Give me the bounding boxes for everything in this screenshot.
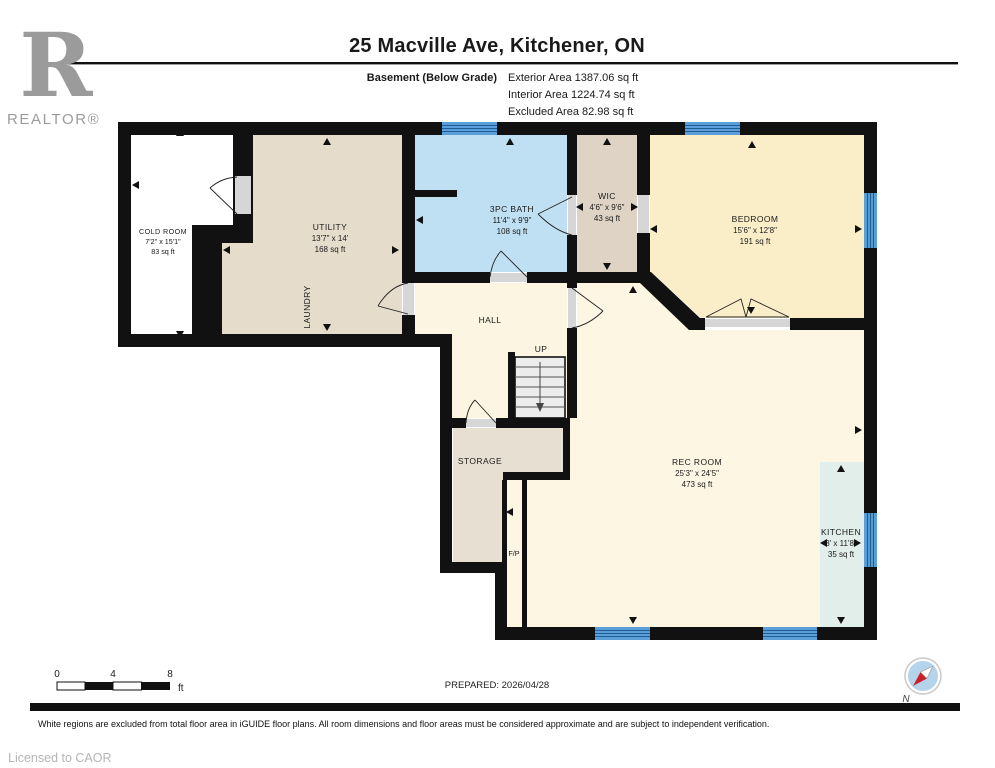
realtor-logo-text: REALTOR® — [7, 111, 100, 128]
floor-label: Basement (Below Grade) — [367, 72, 498, 84]
rec-room-area: 473 sq ft — [682, 480, 713, 489]
scale-bar: 0 4 8 ft — [54, 669, 184, 694]
room-rec-room — [527, 283, 864, 627]
door-hall-rec — [568, 288, 576, 328]
scale-tick-8: 8 — [167, 669, 173, 680]
bath-dims: 11'4" x 9'9" — [493, 216, 532, 225]
bath-area: 108 sq ft — [497, 227, 528, 236]
laundry-label: LAUNDRY — [302, 285, 312, 328]
kitchen-label: KITCHEN — [821, 527, 861, 537]
bedroom-label: BEDROOM — [732, 214, 779, 224]
door-bath-hall — [490, 273, 527, 282]
window-bath-top — [442, 122, 497, 135]
scale-tick-4: 4 — [110, 669, 116, 680]
cold-room-label: COLD ROOM — [139, 227, 187, 236]
door-utility-hall — [403, 283, 414, 315]
window-bedroom-top — [685, 122, 740, 135]
floorplan-page: R REALTOR® 25 Macville Ave, Kitchener, O… — [0, 0, 995, 768]
window-kitchen-right — [864, 513, 877, 567]
door-storage — [466, 419, 496, 427]
bedroom-area: 191 sq ft — [740, 237, 771, 246]
wic-dims: 4'6" x 9'6" — [590, 203, 625, 212]
footer-rule — [30, 703, 960, 711]
realtor-logo-icon: R — [19, 13, 93, 117]
wic-label: WIC — [598, 191, 616, 201]
header-rule — [33, 62, 958, 64]
rec-room-dims: 25'3" x 24'5" — [675, 469, 719, 478]
kitchen-area: 35 sq ft — [828, 550, 855, 559]
door-cold-utility — [235, 176, 251, 214]
utility-label: UTILITY — [313, 222, 347, 232]
kitchen-dims: 3' x 11'8" — [825, 539, 857, 548]
window-kitchen-bottom — [763, 627, 817, 640]
compass-icon: N — [902, 658, 941, 705]
page-title: 25 Macville Ave, Kitchener, ON — [349, 35, 645, 57]
prepared-date: PREPARED: 2026/04/28 — [445, 680, 549, 691]
door-bath-wic — [568, 195, 576, 235]
bedroom-dims: 15'6" x 12'8" — [733, 226, 777, 235]
utility-area: 168 sq ft — [315, 245, 346, 254]
bath-label: 3PC BATH — [490, 204, 534, 214]
utility-dims: 13'7" x 14' — [312, 234, 349, 243]
cold-room-dims: 7'2" x 15'1" — [145, 237, 181, 246]
exterior-area: Exterior Area 1387.06 sq ft — [508, 72, 638, 84]
opening-wic-bedroom — [638, 195, 649, 233]
excluded-area: Excluded Area 82.98 sq ft — [508, 106, 633, 118]
interior-area: Interior Area 1224.74 sq ft — [508, 89, 635, 101]
hall-label: HALL — [479, 315, 502, 325]
scale-tick-0: 0 — [54, 669, 60, 680]
staircase — [515, 357, 565, 418]
fireplace-label: F/P — [508, 549, 519, 558]
up-label: UP — [535, 344, 548, 354]
disclaimer-text: White regions are excluded from total fl… — [38, 719, 769, 729]
footer: 0 4 8 ft PREPARED: 2026/04/28 N White re… — [8, 658, 960, 765]
wic-area: 43 sq ft — [594, 214, 621, 223]
door-bedroom-double — [705, 319, 790, 327]
rec-room-label: REC ROOM — [672, 457, 722, 467]
window-rec-bottom — [595, 627, 650, 640]
scale-unit: ft — [178, 683, 184, 694]
storage-label: STORAGE — [458, 456, 502, 466]
header: R REALTOR® 25 Macville Ave, Kitchener, O… — [7, 13, 958, 128]
license-text: Licensed to CAOR — [8, 751, 112, 765]
cold-room-area: 83 sq ft — [151, 247, 175, 256]
window-bedroom-right — [864, 193, 877, 248]
